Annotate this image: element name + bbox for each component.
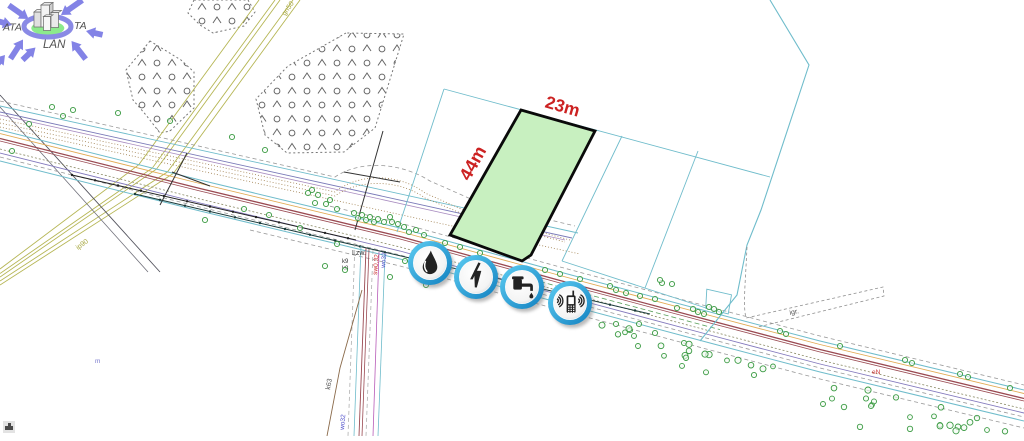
svg-text:LAN: LAN <box>43 39 66 51</box>
svg-text:wo32: wo32 <box>380 252 388 269</box>
svg-text:eN: eN <box>872 369 881 376</box>
svg-text:k9: k9 <box>342 259 349 265</box>
svg-text:m: m <box>95 358 100 365</box>
svg-text:wo32: wo32 <box>339 414 347 431</box>
svg-text:Lzw.: Lzw. <box>352 250 366 257</box>
svg-text:TA: TA <box>74 20 87 32</box>
svg-text:ATA: ATA <box>2 22 22 34</box>
